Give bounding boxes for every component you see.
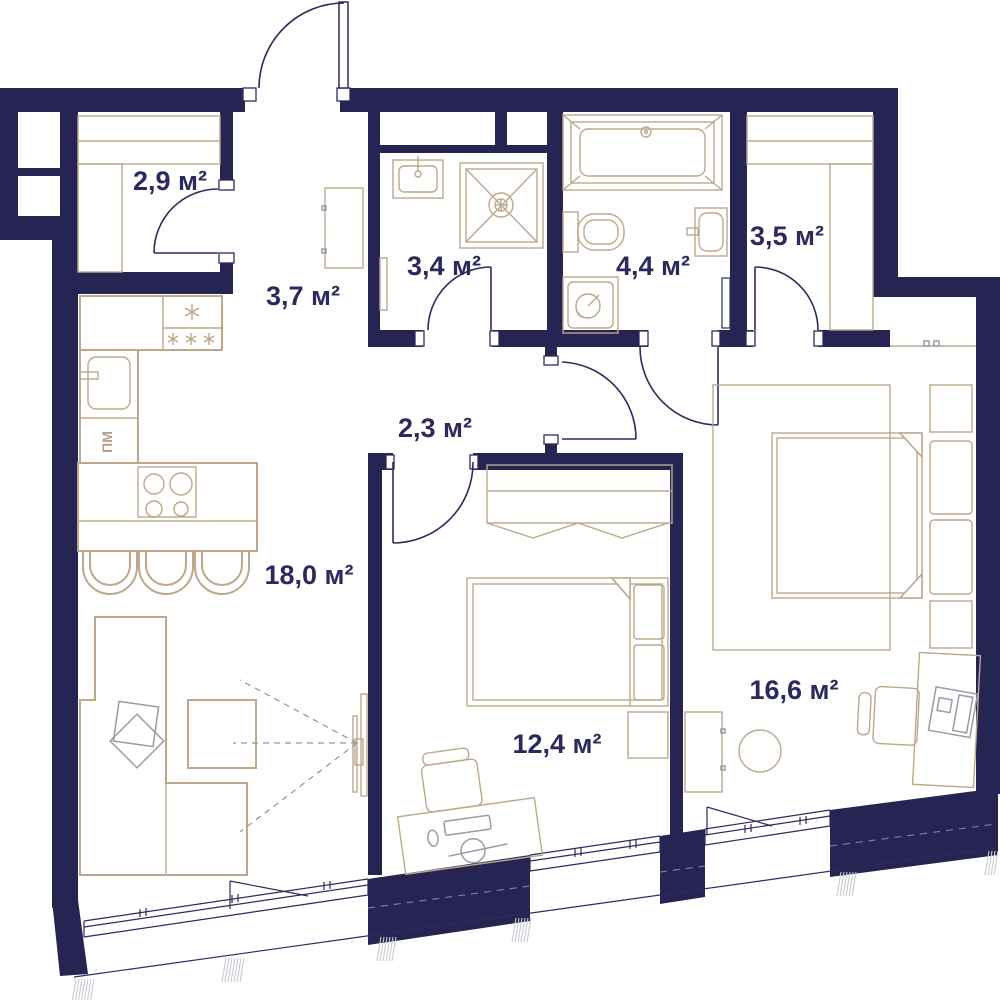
wardrobe-doors [487, 523, 668, 538]
wall-wardrobe1-bottom [52, 272, 233, 294]
label-hallway: 3,7 м² [266, 281, 340, 311]
kitchen: ПМ [78, 296, 257, 594]
door-dressing2 [746, 267, 823, 346]
washing-machine [563, 277, 618, 333]
desk [913, 653, 981, 788]
wall-left [52, 238, 78, 908]
room-bedroom-2 [685, 385, 980, 792]
wall-bath1-bath2 [547, 112, 563, 330]
bar-stool [83, 551, 137, 594]
mouse [427, 830, 439, 847]
kitchen-faucet [80, 372, 98, 379]
chair-backrest [422, 747, 469, 765]
burner [174, 502, 188, 516]
computer-monitor [928, 687, 977, 738]
blanket-fold [900, 433, 922, 457]
washbasin [687, 208, 727, 256]
pouf [739, 730, 781, 772]
hanger-rail-zone [78, 116, 220, 164]
sofa-pillow [113, 701, 158, 746]
wall-right-step [873, 277, 1000, 297]
facade-hatch [72, 851, 998, 1000]
burner [146, 501, 162, 517]
door-corridor [544, 356, 636, 444]
burner [170, 473, 192, 495]
wall-corridor-stub-bottom [545, 444, 557, 453]
pillow [930, 441, 972, 514]
wall-left-bottom [52, 900, 88, 976]
desk-area [855, 649, 981, 787]
carpet [713, 385, 890, 650]
double-bed [772, 433, 972, 598]
kitchen-sink [88, 357, 130, 409]
coffee-table [188, 700, 256, 768]
hallway-furniture [322, 188, 363, 268]
console-cabinet [325, 188, 363, 268]
bathroom-shower-room [380, 156, 543, 310]
niche-closet [890, 341, 976, 346]
wall-bath1-duct-stub [495, 112, 507, 153]
label-bathroom-shower: 3,4 м² [407, 251, 481, 281]
fridge [80, 296, 222, 350]
label-dressing-2: 3,5 м² [750, 221, 824, 251]
nightstand [628, 712, 668, 758]
bar-stool [195, 551, 249, 594]
door-bathroom-main [639, 331, 720, 425]
facade-line [74, 848, 996, 977]
shelving [78, 164, 122, 272]
wall-bath1-left [368, 112, 380, 347]
cabinet-knob [322, 249, 326, 253]
desk-chair [873, 686, 920, 745]
dresser [685, 712, 722, 792]
door-bedroom1 [386, 455, 478, 543]
wall-right-upper [873, 88, 898, 277]
cabinet-knob [322, 206, 326, 210]
label-dressing-1: 2,9 м² [133, 166, 207, 196]
wall-bath1-duct [380, 145, 547, 153]
window-bedroom1 [530, 836, 660, 871]
fridge-star-icon [185, 304, 199, 320]
living-room [80, 617, 367, 875]
entrance-door-leaf [339, 2, 348, 88]
kitchen-island [78, 463, 257, 551]
wall-corridor-stub-top [545, 347, 557, 356]
towel-rail [380, 258, 387, 310]
wall-bottom-chunk3 [830, 788, 998, 877]
chair-armrest [857, 692, 871, 735]
wall-living-bedroom1 [368, 470, 382, 875]
wall-wardrobe1-right-upper [220, 112, 233, 190]
bathtub [563, 115, 722, 190]
dresser-knob [721, 729, 725, 733]
shaft-opening [18, 112, 60, 168]
nightstand [930, 601, 972, 648]
wall-right [976, 297, 1000, 794]
entrance-door [243, 2, 350, 101]
burner [144, 474, 164, 494]
niche-mark [924, 341, 929, 346]
window-opening-mark [707, 807, 772, 835]
hanger-rail-zone [747, 116, 873, 164]
nightstand [930, 385, 972, 432]
label-bedroom-2: 16,6 м² [749, 675, 838, 705]
shower [460, 163, 543, 248]
wall-bath-bottom-d [818, 330, 890, 347]
wardrobe [487, 465, 672, 523]
desk-area [389, 739, 542, 874]
single-bed [467, 578, 668, 706]
keyboard [444, 815, 492, 835]
label-bathroom-main: 4,4 м² [616, 251, 690, 281]
fridge-star-icon [168, 333, 214, 345]
bathroom-main-room [563, 115, 730, 333]
label-living: 18,0 м² [264, 560, 353, 590]
blanket-fold [900, 574, 922, 598]
dresser-knob [721, 766, 725, 770]
walls [0, 88, 1000, 976]
shelving [830, 164, 873, 330]
desk-chair [421, 758, 483, 812]
shaft-opening [18, 176, 60, 216]
niche-mark [934, 341, 939, 346]
towel-radiator [722, 278, 730, 328]
label-corridor: 2,3 м² [398, 413, 472, 443]
toilet [563, 212, 624, 252]
window-bedroom2 [705, 807, 830, 845]
window-living [84, 879, 368, 937]
floor-plan: ПМ [0, 0, 1000, 1000]
wall-bath2-wardrobe2 [730, 112, 747, 330]
dishwasher-label: ПМ [99, 431, 115, 453]
wall-bottom-chunk2 [660, 829, 705, 904]
wall-bedroom1-top-b [473, 453, 683, 470]
label-bedroom-1: 12,4 м² [512, 729, 601, 759]
room-bedroom-1 [389, 465, 672, 874]
bar-stool [139, 551, 193, 594]
pillow [930, 520, 972, 594]
wall-top-right [340, 88, 898, 112]
floor-plan-drawing: ПМ [0, 0, 1000, 1000]
sofa [80, 617, 247, 875]
blanket-fold [612, 578, 630, 599]
